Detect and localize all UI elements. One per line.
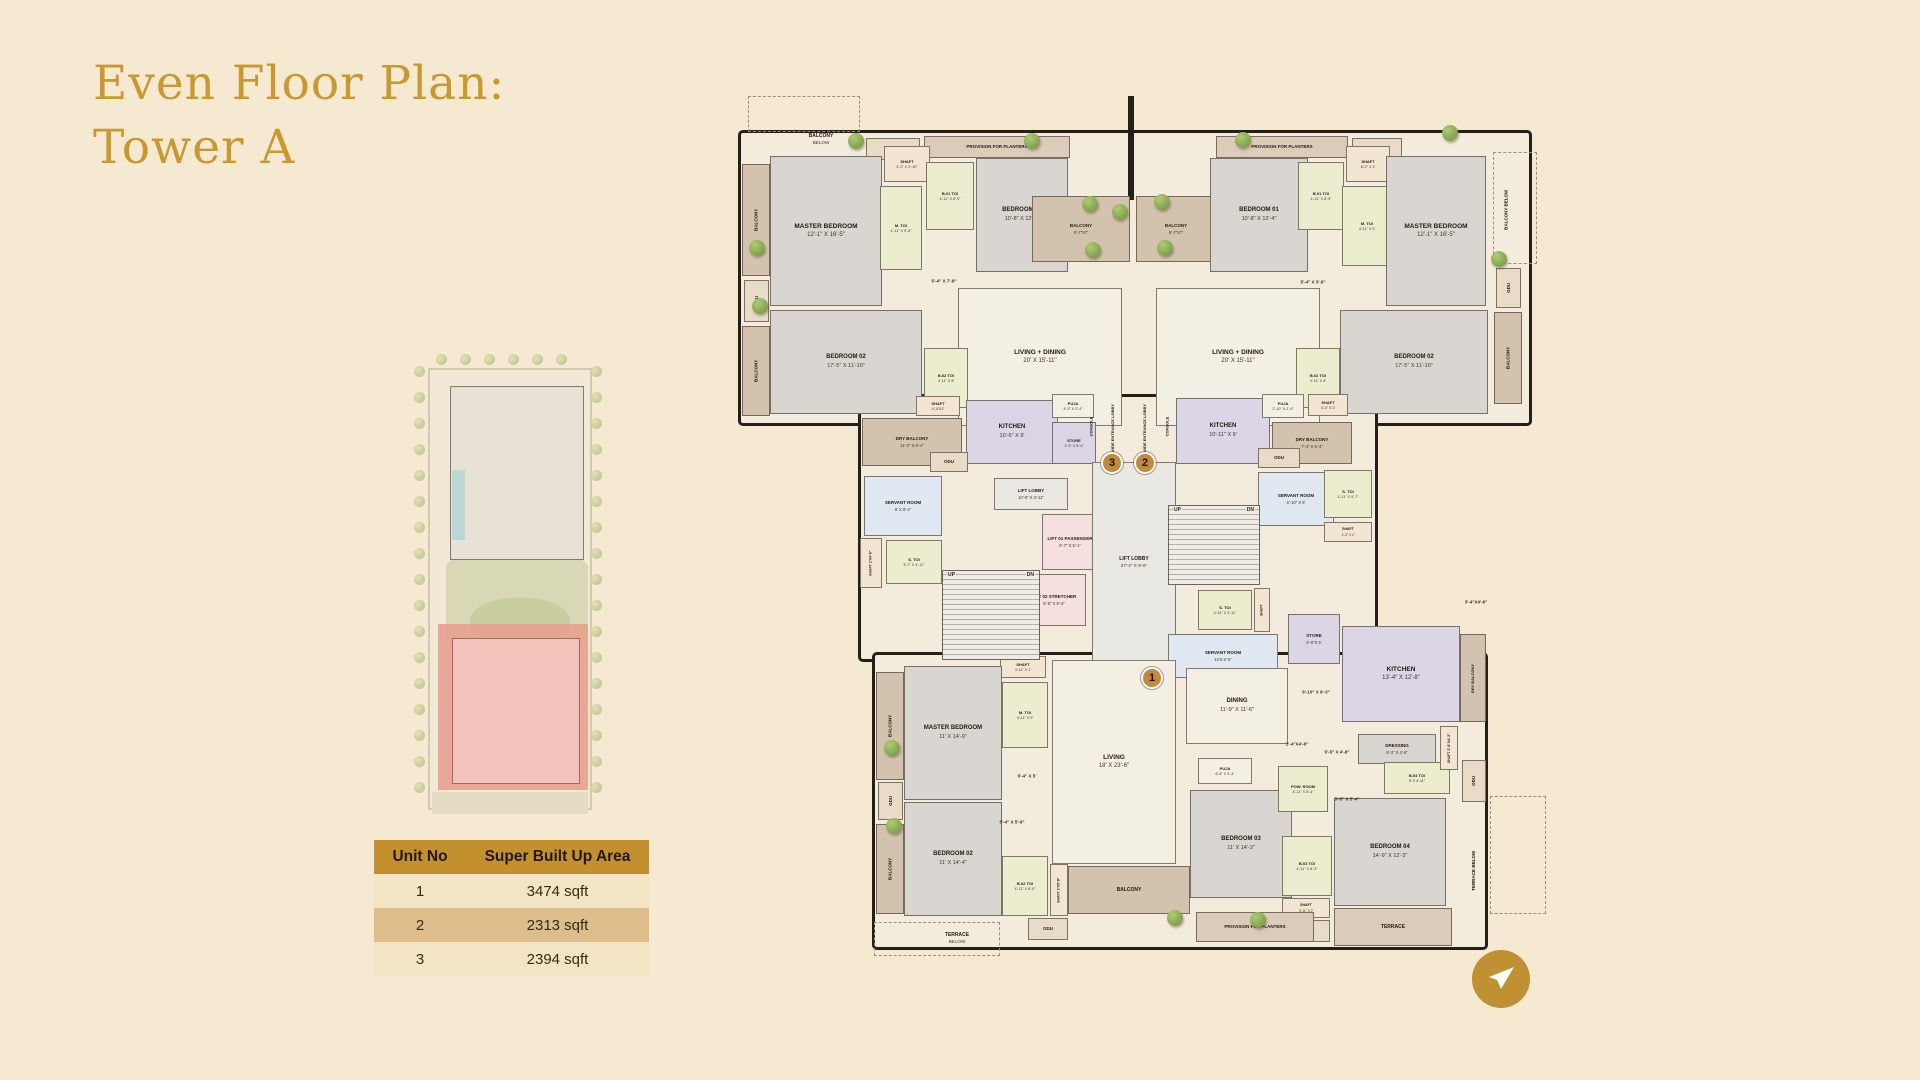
room-servant-room-right: SERVANT ROOM6'-10" X 8' bbox=[1258, 472, 1334, 526]
staircase-1: UPDN bbox=[942, 570, 1040, 660]
corridor-dimension-6: 2'-4"X4'-6" bbox=[1286, 742, 1308, 747]
keyplan-tree-icon bbox=[591, 678, 602, 689]
corridor-dimension-3: 5'-4" X 5' bbox=[1018, 774, 1037, 779]
corridor-dimension-5: 6'-10" X 6'-3" bbox=[1302, 690, 1329, 695]
room-odu-u1-side: ODU bbox=[878, 782, 903, 820]
room-s-toi-right: S. TOI4'-11" X 5'-7" bbox=[1324, 470, 1372, 518]
room-shaft-mid-left: SHAFT4'-4"X2' bbox=[916, 396, 960, 416]
room-balcony-u2-side: BALCONY bbox=[1494, 312, 1522, 404]
room-dining-u1: DINING11'-9" X 11'-6" bbox=[1186, 668, 1288, 744]
keyplan-tree-icon bbox=[591, 782, 602, 793]
keyplan-tree-icon bbox=[414, 704, 425, 715]
room-shaft-mid-right: SHAFT4'-4" X 2' bbox=[1308, 394, 1348, 416]
keyplan-tree-icon bbox=[591, 470, 602, 481]
tree-icon bbox=[1085, 242, 1101, 258]
tree-icon bbox=[752, 298, 768, 314]
keyplan-tree-icon bbox=[414, 626, 425, 637]
room-kitchen-right: KITCHEN10'-11" X 9' bbox=[1176, 398, 1270, 464]
tree-icon bbox=[1442, 125, 1458, 141]
room-terrace-u1: TERRACE bbox=[1334, 908, 1452, 946]
keyplan-tree-icon bbox=[414, 652, 425, 663]
tree-icon bbox=[1112, 204, 1128, 220]
room-balcony-below-top-right: BALCONY BELOW bbox=[1494, 170, 1518, 250]
keyplan-tree-icon bbox=[532, 354, 543, 365]
room-shaft-u3: SHAFT4'-2" X 2'-10" bbox=[884, 146, 930, 182]
send-button[interactable] bbox=[1472, 950, 1530, 1008]
keyplan-tree-icon bbox=[591, 444, 602, 455]
keyplan-tree-icon bbox=[436, 354, 447, 365]
keyplan-tree-icon bbox=[591, 392, 602, 403]
room-kitchen-left: KITCHEN10'-6" X 9' bbox=[966, 400, 1058, 464]
tree-icon bbox=[1082, 196, 1098, 212]
keyplan-tree-icon bbox=[414, 366, 425, 377]
room-master-bedroom-u2: MASTER BEDROOM12'-1" X 16'-5" bbox=[1386, 156, 1486, 306]
room-m-toi-u1: M. TOI4'-11" X 9' bbox=[1002, 682, 1048, 748]
room-living-u1: LIVING18' X 23'-6" bbox=[1052, 660, 1176, 864]
room-lift-lobby-left: LIFT LOBBY10'-6" X 3'-11" bbox=[994, 478, 1068, 510]
keyplan-tree-icon bbox=[591, 574, 602, 585]
unit-marker-3: 3 bbox=[1101, 452, 1123, 474]
room-balcony-below-top-left: BALCONYBELOW bbox=[786, 126, 856, 152]
tree-icon bbox=[886, 818, 902, 834]
tree-icon bbox=[1167, 910, 1183, 926]
page-title-line1: Even Floor Plan: bbox=[93, 52, 505, 116]
unit-3-no: 3 bbox=[374, 942, 466, 976]
room-console-right: CONSOLE bbox=[1160, 400, 1174, 452]
room-bedroom-04-u1: BEDROOM 0414'-9" X 12'-3" bbox=[1334, 798, 1446, 906]
table-row-unit-2: 2 2313 sqft bbox=[374, 908, 649, 942]
column-super-built-up-area: Super Built Up Area bbox=[466, 840, 649, 874]
keyplan-tree-icon bbox=[414, 496, 425, 507]
table-row-unit-3: 3 2394 sqft bbox=[374, 942, 649, 976]
room-balcony-u3-lower: BALCONY bbox=[742, 326, 770, 416]
room-puja-right: PUJA2'-10" X 2'-4" bbox=[1262, 394, 1304, 418]
page-title: Even Floor Plan: Tower A bbox=[93, 52, 505, 180]
keyplan-tree-icon bbox=[414, 678, 425, 689]
keyplan-tree-icon bbox=[414, 600, 425, 611]
room-odu-u1-right: ODU bbox=[1462, 760, 1486, 802]
room-balcony-mid-right: BALCONY8'-7"X7' bbox=[1136, 196, 1216, 262]
keyplan-tree-icon bbox=[414, 392, 425, 403]
keyplan-tree-icon bbox=[414, 444, 425, 455]
keyplan-tree-icon bbox=[591, 366, 602, 377]
unit-marker-2: 2 bbox=[1134, 452, 1156, 474]
room-master-bedroom-u1: MASTER BEDROOM11' X 14'-9" bbox=[904, 666, 1002, 800]
dashed-zone-3 bbox=[1490, 796, 1546, 914]
table-header-row: Unit No Super Built Up Area bbox=[374, 840, 649, 874]
unit-1-no: 1 bbox=[374, 874, 466, 908]
room-b01-toi-u3: B.01 TOI4'-11" X 8'-9" bbox=[926, 162, 974, 230]
keyplan-tree-icon bbox=[414, 548, 425, 559]
staircase-2: UPDN bbox=[1168, 505, 1260, 585]
keyplan-tower-a-footprint bbox=[452, 638, 580, 784]
keyplan-tower-b-footprint bbox=[450, 386, 584, 560]
keyplan-road bbox=[432, 792, 588, 814]
corridor-dimension-4: 5'-4" X 5'-9" bbox=[1000, 820, 1025, 825]
keyplan-tree-icon bbox=[591, 730, 602, 741]
room-dry-balcony-u1: DRY BALCONY bbox=[1460, 634, 1486, 722]
room-lift-01-passenger: LIFT 01 PASSENGER6'-7" X 5'-1" bbox=[1042, 514, 1098, 570]
room-shaft-u1-side: SHAFT 2'X5'-8" bbox=[1050, 864, 1068, 916]
room-store-u1: STORE6'-6"X 6' bbox=[1288, 614, 1340, 664]
room-odu-u1-bottom-left: ODU bbox=[1028, 918, 1068, 940]
paper-plane-icon bbox=[1487, 966, 1515, 992]
room-shaft-u1-right: SHAFT 2'-8"X4'-2" bbox=[1440, 726, 1458, 770]
room-shaft-mid-right-2: SHAFT4'-3" X 2' bbox=[1324, 522, 1372, 542]
tree-icon bbox=[1491, 251, 1507, 267]
keyplan-tree-icon bbox=[460, 354, 471, 365]
unit-area-table: Unit No Super Built Up Area 1 3474 sqft … bbox=[374, 840, 649, 976]
keyplan-tree-icon bbox=[414, 782, 425, 793]
unit-1-area: 3474 sqft bbox=[466, 874, 649, 908]
tree-icon bbox=[1235, 132, 1251, 148]
room-servant-room-left: SERVANT ROOM8' X 8'-4" bbox=[864, 476, 942, 536]
page-title-line2: Tower A bbox=[93, 116, 505, 180]
room-m-toi-u3: M. TOI4'-11" X 9'-0" bbox=[880, 186, 922, 270]
unit-3-area: 2394 sqft bbox=[466, 942, 649, 976]
keyplan-tree-icon bbox=[414, 522, 425, 533]
keyplan-tree-icon bbox=[591, 522, 602, 533]
keyplan-tree-icon bbox=[484, 354, 495, 365]
tree-icon bbox=[1250, 912, 1266, 928]
room-s-toi-center: S. TOI4'-11" X 3'-11" bbox=[1198, 590, 1252, 630]
tree-icon bbox=[884, 740, 900, 756]
keyplan-tree-icon bbox=[414, 418, 425, 429]
keyplan-tree-icon bbox=[591, 600, 602, 611]
room-puja-u1: PUJA6'-5" X 3'-4" bbox=[1198, 758, 1252, 784]
keyplan-pool bbox=[452, 470, 465, 540]
room-b02-toi-u1: B.02 TOI4'-11" X 8'-0" bbox=[1002, 856, 1048, 916]
keyplan-tree-icon bbox=[591, 548, 602, 559]
tree-icon bbox=[1024, 133, 1040, 149]
corridor-dimension-7: 5'-5" X 4'-8" bbox=[1325, 750, 1350, 755]
room-planters-top-left: PROVISION FOR PLANTERS bbox=[924, 136, 1070, 158]
room-m-toi-u2: M. TOI4'-11" X 9' bbox=[1342, 186, 1392, 266]
room-bedroom-02-u1: BEDROOM 0211' X 14'-4" bbox=[904, 802, 1002, 916]
keyplan-tree-icon bbox=[591, 756, 602, 767]
keyplan-tree-icon bbox=[414, 756, 425, 767]
room-terrace-below-right: TERRACE BELOW bbox=[1462, 836, 1486, 906]
room-terrace-below-bottom-left: TERRACEBELOW bbox=[920, 924, 994, 952]
corridor-dimension-1: 5'-4" X 7'-9" bbox=[932, 279, 957, 284]
tree-icon bbox=[848, 133, 864, 149]
room-bedroom-03-u1: BEDROOM 0311' X 14'-3" bbox=[1190, 790, 1292, 898]
keyplan-tree-icon bbox=[591, 418, 602, 429]
room-shaft-mid-left-2: SHAFT 2'X4'-6" bbox=[860, 538, 882, 588]
room-kitchen-u1: KITCHEN13'-4" X 12'-8" bbox=[1342, 626, 1460, 722]
room-balcony-u1-lower: BALCONY bbox=[876, 824, 904, 914]
room-odu-mid-left: ODU bbox=[930, 452, 968, 472]
column-unit-no: Unit No bbox=[374, 840, 466, 874]
keyplan-tree-icon bbox=[591, 496, 602, 507]
room-bedroom-02-u2: BEDROOM 0217'-5" X 11'-10" bbox=[1340, 310, 1488, 414]
tree-icon bbox=[1154, 194, 1170, 210]
room-b03-toi-u1: B.03 TOI4'-11" X 8'-3" bbox=[1282, 836, 1332, 896]
keyplan-tree-icon bbox=[508, 354, 519, 365]
room-odu-mid-right: ODU bbox=[1258, 448, 1300, 468]
room-bedroom-02-u3: BEDROOM 0217'-5" X 11'-10" bbox=[770, 310, 922, 414]
room-console-left: CONSOLE bbox=[1084, 400, 1098, 452]
keyplan-tree-icon bbox=[591, 704, 602, 715]
tree-icon bbox=[1157, 240, 1173, 256]
room-master-bedroom-u3: MASTER BEDROOM12'-1" X 16'-5" bbox=[770, 156, 882, 306]
room-shaft-u2: SHAFT6'-2" X 2' bbox=[1346, 146, 1390, 182]
room-balcony-u1-bottom: BALCONY bbox=[1068, 866, 1190, 914]
corridor-dimension-8: 5'-5" X 5'-4" bbox=[1335, 797, 1360, 802]
room-dressing-u1: DRESSING8'-3" X 4'-6" bbox=[1358, 734, 1436, 764]
building-center-spine bbox=[1128, 96, 1134, 200]
unit-marker-1: 1 bbox=[1141, 667, 1163, 689]
room-s-toi-left: S. TOI5'-7" X 4'-11" bbox=[886, 540, 942, 584]
room-pow-room-u1: POW. ROOM4'-11" X 5'-4" bbox=[1278, 766, 1328, 812]
keyplan-tree-icon bbox=[414, 730, 425, 741]
room-bedroom-01-u2: BEDROOM 0110'-8" X 12'-4" bbox=[1210, 158, 1308, 272]
corridor-dimension-9: 3'-4"X4'-6" bbox=[1465, 600, 1487, 605]
keyplan-tree-icon bbox=[591, 652, 602, 663]
keyplan-tree-icon bbox=[414, 574, 425, 585]
room-balcony-u3-upper: BALCONY bbox=[742, 164, 770, 276]
room-shaft-center: SHAFT bbox=[1254, 588, 1270, 632]
keyplan-tree-icon bbox=[414, 470, 425, 481]
room-b01-toi-u2: B.01 TOI4'-11" X 8'-9" bbox=[1298, 162, 1344, 230]
keyplan-tree-icon bbox=[556, 354, 567, 365]
room-balcony-u1-upper: BALCONY bbox=[876, 672, 904, 780]
site-key-plan bbox=[412, 352, 604, 822]
unit-2-area: 2313 sqft bbox=[466, 908, 649, 942]
corridor-dimension-2: 5'-4" X 3'-6" bbox=[1301, 280, 1326, 285]
table-row-unit-1: 1 3474 sqft bbox=[374, 874, 649, 908]
tree-icon bbox=[749, 240, 765, 256]
room-lift-lobby-center: LIFT LOBBY27'-4" X 9'-6" bbox=[1092, 462, 1176, 662]
keyplan-tree-icon bbox=[591, 626, 602, 637]
unit-2-no: 2 bbox=[374, 908, 466, 942]
room-odu-u2-side: ODU bbox=[1496, 268, 1521, 308]
